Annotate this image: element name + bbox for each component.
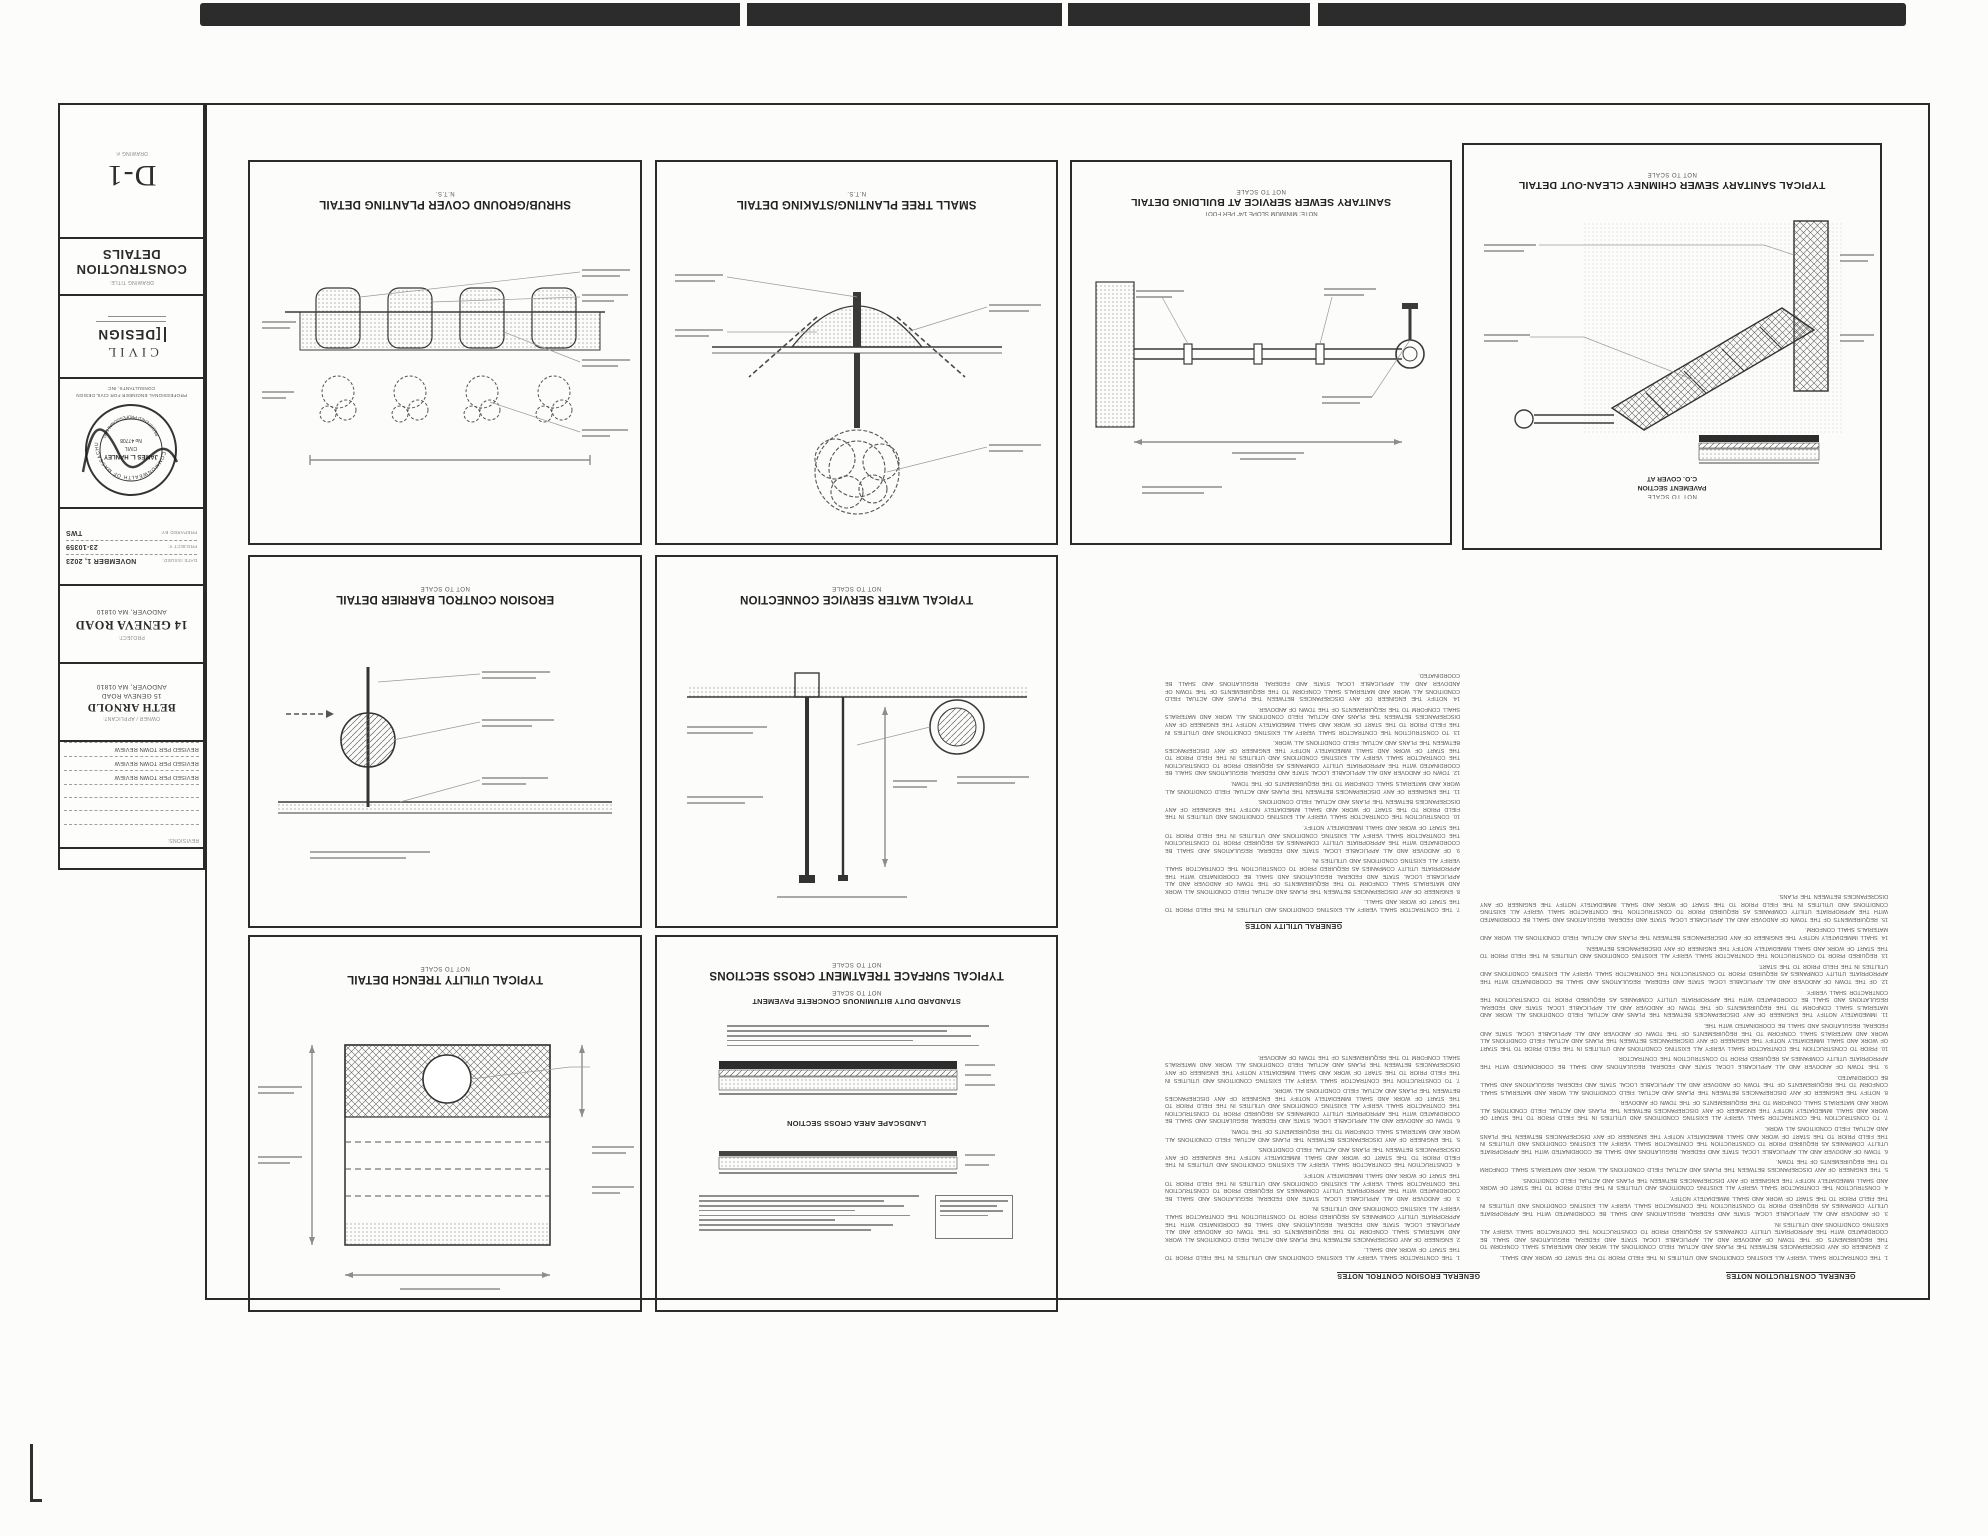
illegible-text-line <box>699 1210 855 1212</box>
illegible-text-line <box>940 1210 1003 1212</box>
backfill-layers <box>345 1142 550 1196</box>
title-block-dates-cell: DATE ISSUED: NOVEMBER 1, 2023 PROJECT #:… <box>60 507 203 584</box>
panel-tree-scale: N.T.S. <box>847 190 866 196</box>
owner-address1: 15 GENEVA ROAD <box>101 692 161 699</box>
drawing-number-label: DRAWING #: <box>115 150 148 156</box>
date-issued-label: DATE ISSUED: <box>162 558 197 563</box>
illegible-text-line <box>727 1025 989 1027</box>
notes-column-a-lower: 1. THE CONTRACTOR SHALL VERIFY ALL EXIST… <box>1165 942 1460 1260</box>
illegible-note-paragraph: 1. THE CONTRACTOR SHALL VERIFY ALL EXIST… <box>1165 1245 1460 1260</box>
pavement-strip-drawing <box>717 1059 997 1105</box>
scan-corner-mark <box>30 1499 42 1502</box>
shrub-detail-drawing <box>250 242 640 537</box>
illegible-note-paragraph: 13. TO CONSTRUCTION THE CONTRACTOR SHALL… <box>1165 704 1460 734</box>
illegible-labels <box>687 727 1029 897</box>
illegible-note-paragraph: 10. CONSTRUCTION THE CONTRACTOR SHALL VE… <box>1165 797 1460 820</box>
revision-row: REVISED PER TOWN REVIEW <box>64 770 198 782</box>
surface-sub2-header: LANDSCAPE AREA CROSS SECTION <box>657 1119 1056 1128</box>
panel-water-title: TYPICAL WATER SERVICE CONNECTION <box>740 593 973 605</box>
notes-column-b: 1. THE CONTRACTOR SHALL VERIFY ALL EXIST… <box>1480 565 1888 1260</box>
project-name: 14 GENEVA ROAD <box>75 617 187 632</box>
scan-corner-mark <box>30 1444 33 1502</box>
revision-row-empty <box>64 811 198 822</box>
silt-sock-section <box>341 713 395 767</box>
utility-pipe <box>423 1055 471 1103</box>
illegible-note-paragraph: 13. REQUIRED PRIOR TO CONSTRUCTION THE C… <box>1480 943 1888 958</box>
illegible-note-paragraph: 6. TOWN OF ANDOVER AND ALL APPLICABLE LO… <box>1165 1086 1460 1124</box>
illegible-note-paragraph: 15. REQUIREMENTS OF THE TOWN OF ANDOVER … <box>1480 891 1888 921</box>
illegible-note-paragraph: 5. THE ENGINEER OF ANY DISCREPANCIES BET… <box>1165 1127 1460 1142</box>
notes-header-utility: GENERAL UTILITY NOTES <box>1245 922 1342 931</box>
illegible-note-paragraph: 4. CONSTRUCTION THE CONTRACTOR SHALL VER… <box>1480 1175 1888 1190</box>
illegible-note-paragraph: 12. OF THE TOWN OF ANDOVER AND ALL APPLI… <box>1480 961 1888 984</box>
illegible-note-paragraph: 2. ENGINEER OF ANY DISCREPANCIES BETWEEN… <box>1480 1219 1888 1249</box>
revisions-label: REVISIONS: <box>167 837 199 843</box>
panel-cleanout-header: TYPICAL SANITARY SEWER CHIMNEY CLEAN-OUT… <box>1464 171 1880 191</box>
flow-arrow <box>286 710 334 718</box>
date-issued-value: NOVEMBER 1, 2023 <box>66 557 137 564</box>
illegible-text-line <box>727 1045 979 1047</box>
title-block-owner-cell: OWNER / APPLICANT: BETH ARNOLD 15 GENEVA… <box>60 662 203 740</box>
panel-sewer-service: NOTE: MINIMUM SLOPE 1/4" PER FOOT SANITA… <box>1070 160 1452 545</box>
panel-erosion-header: EROSION CONTROL BARRIER DETAIL NOT TO SC… <box>250 585 640 605</box>
illegible-text-line <box>699 1219 835 1221</box>
panel-surface-scale: NOT TO SCALE <box>832 961 882 967</box>
panel-surface-title: TYPICAL SURFACE TREATMENT CROSS SECTIONS <box>709 969 1003 981</box>
illegible-note-paragraph: 2. ENGINEER OF ANY DISCREPANCIES BETWEEN… <box>1165 1204 1460 1242</box>
prepared-by-label: PREPARED BY: <box>160 530 197 535</box>
building-wall <box>1096 282 1134 427</box>
illegible-note-paragraph: 7. TO CONSTRUCTION THE CONTRACTOR SHALL … <box>1165 1052 1460 1082</box>
firm-address-illegible <box>97 313 167 323</box>
illegible-text-line <box>699 1215 910 1217</box>
surface-sub2-title: LANDSCAPE AREA CROSS SECTION <box>787 1119 926 1128</box>
project-label: PROJECT: <box>118 634 145 640</box>
panel-trench-title: TYPICAL UTILITY TRENCH DETAIL <box>347 973 543 985</box>
firm-logo-word-civil: CIVIL <box>104 344 159 360</box>
scan-bar-gap <box>740 3 747 26</box>
scan-bar-gap <box>1062 3 1068 26</box>
illegible-note-paragraph: 7. THE CONTRACTOR SHALL VERIFY ALL EXIST… <box>1165 897 1460 912</box>
panel-sewer-header: NOTE: MINIMUM SLOPE 1/4" PER FOOT SANITA… <box>1072 188 1450 216</box>
illegible-text-line <box>108 316 167 318</box>
surface-note-illegible-bottom <box>699 1195 919 1234</box>
detail-bubble <box>857 700 984 754</box>
panel-erosion-scale: NOT TO SCALE <box>420 585 470 591</box>
owner-name: BETH ARNOLD <box>87 701 175 713</box>
illegible-note-paragraph: 8. NOTIFY THE ENGINEER OF ANY DISCREPANC… <box>1480 1072 1888 1095</box>
prepared-by-value: TWS <box>66 529 82 536</box>
project-address: ANDOVER, MA 01810 <box>96 608 166 615</box>
trench-detail-drawing <box>250 1027 640 1307</box>
cleanout-detail-drawing <box>1464 215 1880 445</box>
illegible-text-line <box>940 1215 988 1217</box>
panel-utility-trench: TYPICAL UTILITY TRENCH DETAIL NOT TO SCA… <box>248 935 642 1312</box>
foliage-scribble <box>815 430 899 514</box>
trunk-below <box>854 353 860 428</box>
trunk-in-mound <box>853 292 861 347</box>
project-number-label: PROJECT #: <box>168 544 197 549</box>
surface-sub1-header: STANDARD DUTY BITUMINOUS CONCRETE PAVEME… <box>657 989 1056 1006</box>
notes-header-construction: GENERAL CONSTRUCTION NOTES <box>1726 1272 1855 1281</box>
revision-row: REVISED PER TOWN REVIEW <box>64 742 198 754</box>
co-cover-subheader: NOT TO SCALE PAVEMENT SECTION C.O. COVER… <box>1464 475 1880 499</box>
panel-erosion-title: EROSION CONTROL BARRIER DETAIL <box>336 593 554 605</box>
firm-logo-word-design: [DESIGN <box>97 327 165 342</box>
panel-water-scale: NOT TO SCALE <box>832 585 882 591</box>
erosion-detail-drawing <box>250 652 640 902</box>
surface-sub1-title: STANDARD DUTY BITUMINOUS CONCRETE PAVEME… <box>752 997 961 1006</box>
scan-bar-gap <box>1310 3 1318 26</box>
illegible-note-paragraph: 14. SHALL IMMEDIATELY NOTIFY THE ENGINEE… <box>1480 925 1888 940</box>
illegible-text-line <box>699 1195 919 1197</box>
illegible-text-line <box>699 1229 871 1231</box>
owner-address2: ANDOVER, MA 01810 <box>96 683 166 690</box>
revision-row-empty <box>64 784 198 795</box>
scan-artifact-bar <box>200 3 1906 26</box>
title-block-revisions-cell: REVISIONS: REVISED PER TOWN REVIEW REVIS… <box>60 740 203 847</box>
co-cover-pavement-drawing <box>1694 433 1824 467</box>
illegible-note-paragraph: 9. OF ANDOVER AND ALL APPLICABLE LOCAL S… <box>1165 822 1460 852</box>
title-block-drawing-title-cell: DRAWING TITLE: CONSTRUCTION DETAILS <box>60 237 203 294</box>
illegible-note-paragraph: 7. TO CONSTRUCTION THE CONTRACTOR SHALL … <box>1480 1098 1888 1121</box>
panel-shrub-ground-cover: SHRUB/GROUND COVER PLANTING DETAIL N.T.S… <box>248 160 642 545</box>
project-number-value: 23-10359 <box>66 543 98 550</box>
title-block-empty-cell <box>60 847 203 868</box>
vertical-chimney <box>1794 221 1828 391</box>
dimension <box>1134 439 1402 459</box>
panel-cleanout-scale: NOT TO SCALE <box>1647 171 1697 177</box>
project-number-row: PROJECT #: 23-10359 <box>66 540 198 552</box>
panel-surface-treatment: TYPICAL SURFACE TREATMENT CROSS SECTIONS… <box>655 935 1058 1312</box>
panel-sewer-title: SANITARY SEWER SERVICE AT BUILDING DETAI… <box>1131 196 1391 208</box>
panel-trench-header: TYPICAL UTILITY TRENCH DETAIL NOT TO SCA… <box>250 965 640 985</box>
panel-tree-header: SMALL TREE PLANTING/STAKING DETAIL N.T.S… <box>657 190 1056 210</box>
title-block-drawing-number-cell: D-1 DRAWING #: <box>60 105 203 237</box>
title-block-project-cell: PROJECT: 14 GENEVA ROAD ANDOVER, MA 0181… <box>60 584 203 662</box>
prepared-by-row: PREPARED BY: TWS <box>66 527 198 538</box>
title-block-stamp-cell: COMMONWEALTH OF MASSACHUSETTS REGISTERED… <box>60 377 203 507</box>
panel-tree-title: SMALL TREE PLANTING/STAKING DETAIL <box>737 198 977 210</box>
surface-note-illegible-top <box>727 1025 989 1049</box>
title-block: D-1 DRAWING #: DRAWING TITLE: CONSTRUCTI… <box>58 103 205 870</box>
illegible-note-paragraph: 11. THE ENGINEER OF ANY DISCREPANCIES BE… <box>1165 779 1460 794</box>
subbase-layer <box>345 1223 550 1245</box>
panel-shrub-title: SHRUB/GROUND COVER PLANTING DETAIL <box>319 198 571 210</box>
illegible-note-paragraph: 4. CONSTRUCTION THE CONTRACTOR SHALL VER… <box>1165 1145 1460 1168</box>
illegible-text-line <box>727 1030 947 1032</box>
date-issued-row: DATE ISSUED: NOVEMBER 1, 2023 <box>66 554 198 566</box>
panel-shrub-scale: N.T.S. <box>435 190 454 196</box>
illegible-note-paragraph: 3. OF ANDOVER AND ALL APPLICABLE LOCAL S… <box>1480 1193 1888 1216</box>
panel-cleanout: TYPICAL SANITARY SEWER CHIMNEY CLEAN-OUT… <box>1462 143 1882 550</box>
notes-header-erosion: GENERAL EROSION CONTROL NOTES <box>1337 1272 1480 1281</box>
illegible-note-paragraph: 5. THE ENGINEER OF ANY DISCREPANCIES BET… <box>1480 1157 1888 1172</box>
label-leaders <box>1162 297 1410 397</box>
pe-stamp: COMMONWEALTH OF MASSACHUSETTS REGISTERED… <box>82 400 182 500</box>
panel-sewer-scale: NOT TO SCALE <box>1236 188 1286 194</box>
illegible-text-line <box>727 1040 913 1042</box>
panel-surface-header: TYPICAL SURFACE TREATMENT CROSS SECTIONS… <box>657 961 1056 981</box>
panel-sewer-note: NOTE: MINIMUM SLOPE 1/4" PER FOOT <box>1204 210 1317 216</box>
illegible-note-paragraph: 1. THE CONTRACTOR SHALL VERIFY ALL EXIST… <box>1480 1252 1888 1260</box>
panel-shrub-header: SHRUB/GROUND COVER PLANTING DETAIL N.T.S… <box>250 190 640 210</box>
landscape-strip-drawing <box>717 1149 997 1179</box>
panel-trench-scale: NOT TO SCALE <box>420 965 470 971</box>
scanned-sheet-page: D-1 DRAWING #: DRAWING TITLE: CONSTRUCTI… <box>0 0 1988 1536</box>
root-scribbles <box>320 376 572 422</box>
illegible-text-line <box>727 1035 971 1037</box>
revision-row-empty <box>64 797 198 808</box>
panel-water-service: TYPICAL WATER SERVICE CONNECTION NOT TO … <box>655 555 1058 928</box>
panel-erosion-barrier: EROSION CONTROL BARRIER DETAIL NOT TO SC… <box>248 555 642 928</box>
panel-water-header: TYPICAL WATER SERVICE CONNECTION NOT TO … <box>657 585 1056 605</box>
firm-tagline-line1: PROFESSIONAL ENGINEER FOR CIVIL DESIGN <box>76 393 187 398</box>
illegible-text-line <box>699 1200 884 1202</box>
co-cover-sub-scale: NOT TO SCALE <box>1647 493 1697 499</box>
stamp-license: No 47708 <box>120 437 142 443</box>
illegible-text-line <box>699 1224 893 1226</box>
illegible-note-paragraph: 9. THE TOWN OF ANDOVER AND ALL APPLICABL… <box>1480 1054 1888 1069</box>
sewer-detail-drawing <box>1072 257 1450 537</box>
sieve-table-illegible <box>935 1195 1013 1239</box>
panel-small-tree: SMALL TREE PLANTING/STAKING DETAIL N.T.S… <box>655 160 1058 545</box>
illegible-note-paragraph: 12. TOWN OF ANDOVER AND ALL APPLICABLE L… <box>1165 738 1460 776</box>
illegible-labels <box>310 672 554 858</box>
illegible-text-line <box>940 1205 997 1207</box>
illegible-text-line <box>699 1205 904 1207</box>
revision-row-empty <box>64 824 198 835</box>
illegible-note-paragraph: 8. ENGINEER OF ANY DISCREPANCIES BETWEEN… <box>1165 856 1460 894</box>
illegible-note-paragraph: 14. NOTIFY THE ENGINEER OF ANY DISCREPAN… <box>1165 671 1460 701</box>
illegible-note-paragraph: 11. IMMEDIATELY NOTIFY THE ENGINEER OF A… <box>1480 987 1888 1017</box>
notes-column-a-upper: 7. THE CONTRACTOR SHALL VERIFY ALL EXIST… <box>1165 560 1460 912</box>
panel-cleanout-title: TYPICAL SANITARY SEWER CHIMNEY CLEAN-OUT… <box>1519 179 1826 191</box>
revision-row: REVISED PER TOWN REVIEW <box>64 756 198 768</box>
dimension <box>882 707 937 867</box>
stamp-discipline: CIVIL <box>125 445 138 451</box>
co-cover-sub-line1: C.O. COVER AT <box>1647 475 1697 482</box>
owner-label: OWNER / APPLICANT: <box>103 715 160 721</box>
illegible-text-line <box>940 1200 1008 1202</box>
water-detail-drawing <box>657 647 1056 912</box>
tree-detail-drawing <box>657 237 1056 537</box>
title-block-logo-cell: CIVIL [DESIGN <box>60 294 203 377</box>
illegible-note-paragraph: 10. PRIOR TO CONSTRUCTION THE CONTRACTOR… <box>1480 1020 1888 1050</box>
drawing-title: CONSTRUCTION DETAILS <box>72 248 192 278</box>
drawing-title-label: DRAWING TITLE: <box>109 280 153 286</box>
riser-fitting <box>1396 340 1424 368</box>
illegible-text-line <box>97 321 167 323</box>
pipe-couplings <box>1184 344 1324 364</box>
co-cover-sub-line2: PAVEMENT SECTION <box>1638 484 1707 491</box>
drawing-number: D-1 <box>107 158 157 192</box>
illegible-labels <box>1136 289 1376 493</box>
illegible-note-paragraph: 6. TOWN OF ANDOVER AND ALL APPLICABLE LO… <box>1480 1124 1888 1154</box>
surface-sub1-scale: NOT TO SCALE <box>832 989 882 995</box>
illegible-note-paragraph: 3. OF ANDOVER AND ALL APPLICABLE LOCAL S… <box>1165 1170 1460 1200</box>
firm-tagline-line2: CONSULTANTS, INC <box>108 386 155 391</box>
